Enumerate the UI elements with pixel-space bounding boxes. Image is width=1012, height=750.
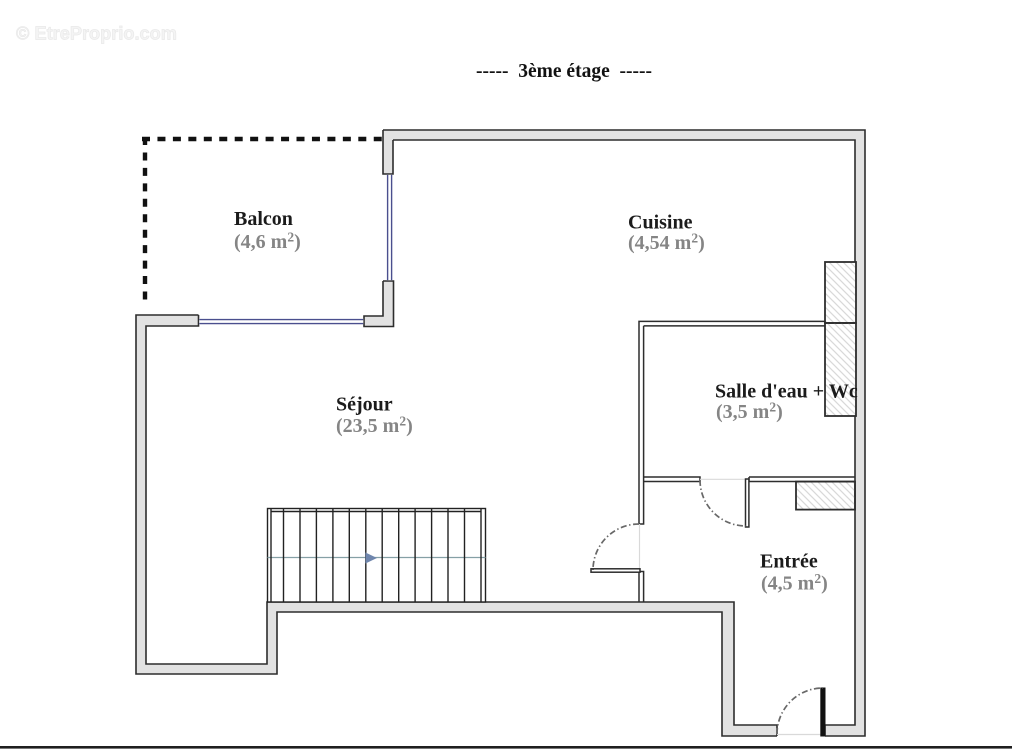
svg-text:Entrée: Entrée: [760, 551, 818, 573]
svg-text:© EtreProprio.com: © EtreProprio.com: [16, 24, 177, 44]
svg-text:----- 3ème étage -----: ----- 3ème étage -----: [476, 61, 652, 82]
svg-text:Salle d'eau + Wc: Salle d'eau + Wc: [715, 381, 858, 403]
svg-text:(4,6 m2): (4,6 m2): [234, 230, 301, 253]
svg-text:(23,5 m2): (23,5 m2): [336, 414, 413, 437]
svg-text:(3,5 m2): (3,5 m2): [716, 400, 783, 423]
svg-text:(4,54 m2): (4,54 m2): [628, 231, 705, 254]
svg-text:Séjour: Séjour: [336, 394, 393, 416]
svg-text:Balcon: Balcon: [234, 208, 293, 230]
svg-text:Cuisine: Cuisine: [628, 212, 693, 234]
svg-text:(4,5 m2): (4,5 m2): [761, 571, 828, 594]
